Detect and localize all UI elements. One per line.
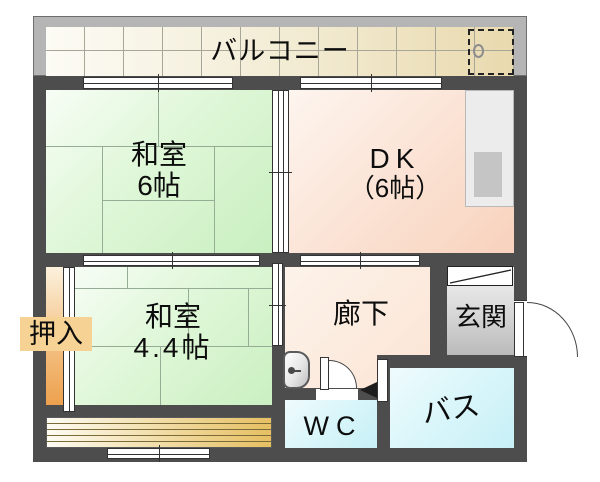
fusuma-washitsu6-dk	[272, 90, 289, 253]
fusuma-washitsu6-washitsu44	[83, 255, 260, 266]
kitchen-sink	[474, 152, 502, 197]
faucet-icon	[473, 44, 484, 58]
wc-door-leaf	[320, 357, 329, 390]
wall-under-washitsu44	[46, 405, 272, 417]
window-center-tick	[371, 74, 372, 92]
dk-label: DK （6帖）	[325, 143, 465, 203]
engawa-deck	[46, 417, 272, 448]
entrance-door-swing-arc	[527, 302, 578, 357]
bath-door-swing-marker	[360, 382, 377, 398]
fusuma-washitsu44-corridor	[272, 263, 283, 346]
tatami-line	[248, 288, 249, 346]
entrance-door-leaf	[514, 302, 524, 357]
bath-door-leaf	[377, 359, 388, 402]
window-washitsu6-balcony	[83, 77, 233, 89]
balcony-label: バルコニー	[180, 36, 380, 66]
washitsu44-label: 和室 4.4帖	[103, 301, 243, 364]
tatami-line	[75, 288, 272, 289]
washitsu44-name: 和室	[103, 301, 243, 332]
dk-size: （6帖）	[325, 174, 465, 203]
wall-right	[514, 76, 527, 462]
fusuma-center-tick	[172, 252, 173, 269]
fusuma-center-tick	[269, 172, 292, 173]
washitsu6-size: 6帖	[89, 170, 229, 201]
washitsu44-size: 4.4帖	[103, 332, 243, 363]
washbasin	[283, 351, 310, 389]
window-center-tick	[158, 74, 159, 92]
rouka-label: 廊下	[328, 298, 394, 329]
wall-bath-top	[377, 355, 514, 368]
oshiire-label: 押入	[20, 317, 92, 351]
wall-left	[33, 76, 46, 462]
floor-plan: バルコニー 和室 6帖 DK （6帖） 和室 4.4帖 押入 廊下 玄関 WC …	[0, 0, 600, 482]
sliding-door-dk-corridor	[300, 255, 420, 266]
wc-label: WC	[300, 411, 366, 441]
door-center-tick	[360, 252, 361, 269]
shoe-cabinet	[447, 266, 513, 286]
fusuma-center-tick	[269, 305, 286, 306]
washitsu6-name: 和室	[89, 139, 229, 170]
wc-door-opening	[316, 389, 358, 400]
wall-corridor-genkan	[430, 267, 447, 357]
shoe-cabinet-diagonal	[448, 267, 514, 287]
washbasin-spout-icon	[294, 370, 301, 372]
dk-name: DK	[325, 143, 465, 174]
window-center-tick	[159, 445, 160, 462]
window-bottom	[107, 448, 210, 459]
window-dk-balcony	[300, 77, 442, 89]
tatami-line	[127, 267, 128, 288]
genkan-label: 玄関	[451, 303, 511, 332]
washitsu6-label: 和室 6帖	[89, 139, 229, 202]
tatami-line	[158, 90, 159, 146]
